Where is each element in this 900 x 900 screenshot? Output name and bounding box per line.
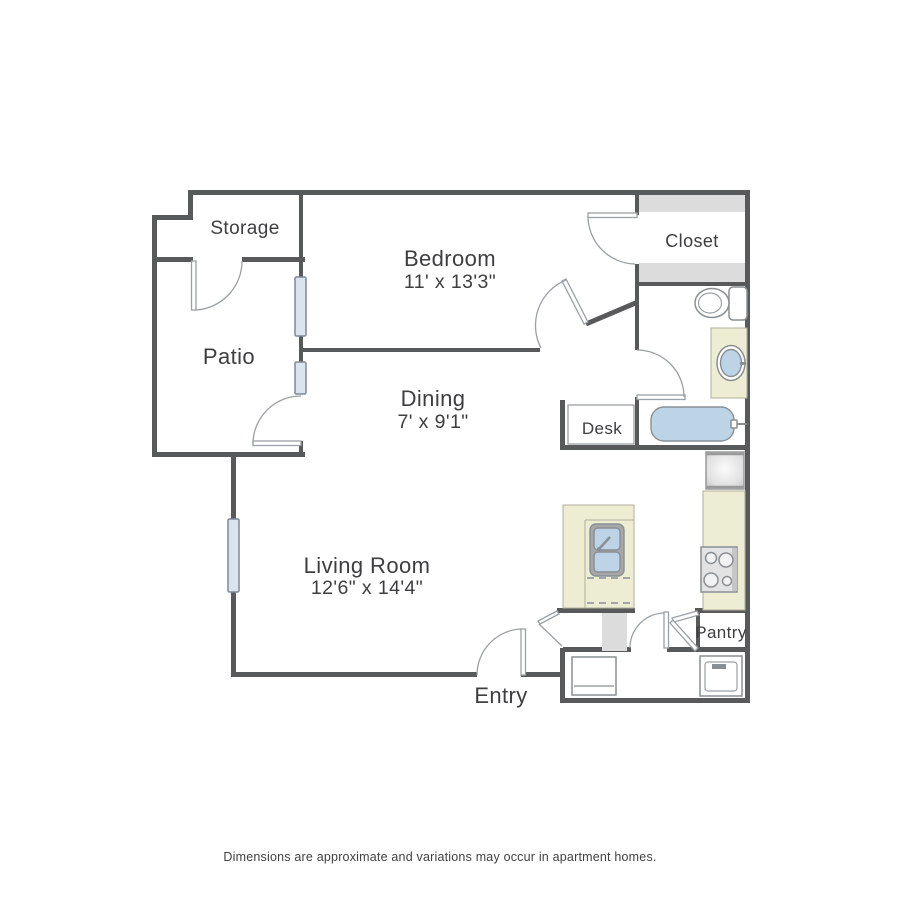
kitchen-sink-icon <box>590 524 624 576</box>
refrigerator-icon <box>706 452 744 489</box>
wall-closet-bottom <box>635 282 750 286</box>
wall-storage-step-h <box>152 215 193 220</box>
wall-hall-bottom-right <box>667 647 750 652</box>
patio-window-lower <box>295 362 306 394</box>
entry-door <box>477 629 526 675</box>
wall-patio-left <box>152 215 157 457</box>
disclaimer-text: Dimensions are approximate and variation… <box>223 850 656 864</box>
storage-door <box>192 261 243 310</box>
bathtub-icon <box>651 407 747 441</box>
patio-door <box>253 396 301 446</box>
windows <box>228 277 306 592</box>
dining-dimensions: 7' x 9'1" <box>397 411 468 433</box>
kitchen-island-counter <box>563 505 634 608</box>
bathroom-vanity <box>711 328 747 398</box>
laundry <box>572 656 742 696</box>
wall-bottom-right <box>560 698 750 703</box>
kitchen-wall-counter <box>701 491 745 610</box>
wall-entry-stub <box>521 672 565 677</box>
bathroom <box>651 287 747 441</box>
wall-storage-bottom-left <box>152 257 193 262</box>
toilet-icon <box>695 287 747 320</box>
storage-label: Storage <box>210 218 279 239</box>
entry-closet-bifold-door <box>538 611 562 646</box>
bedroom-door <box>535 279 588 348</box>
closet-label: Closet <box>665 231 718 251</box>
closet-door <box>588 213 637 264</box>
closet-shelf-top <box>639 195 745 212</box>
wall-bath-left <box>635 264 639 350</box>
laundry-door <box>630 612 669 648</box>
wall-living-bottom <box>231 672 477 677</box>
living-room-label: Living Room <box>304 553 431 578</box>
wall-bath-bottom <box>560 445 750 450</box>
wall-storage-bottom-right <box>242 257 305 262</box>
entry-label: Entry <box>474 683 527 708</box>
bathroom-door <box>637 350 685 400</box>
wall-top <box>188 190 750 195</box>
living-room-dimensions: 12'6" x 14'4" <box>311 577 423 599</box>
wall-bath-left-lower <box>635 397 639 450</box>
wall-bedroom-diagonal <box>586 302 638 324</box>
stove-icon <box>701 547 737 592</box>
wall-closet-left-upper <box>635 195 639 215</box>
dining-label: Dining <box>401 386 466 411</box>
patio-window-upper <box>295 277 306 336</box>
wall-island-bottom <box>557 608 635 613</box>
pantry-label: Pantry <box>695 623 747 642</box>
kitchen <box>563 452 745 610</box>
wall-storage-step-v <box>188 190 193 220</box>
bedroom-dimensions: 11' x 13'3" <box>404 271 496 293</box>
entry-closet-partition <box>602 613 627 651</box>
washer-icon <box>572 657 616 695</box>
floor-plan-drawing: Storage Bedroom 11' x 13'3" Closet Patio… <box>0 0 900 900</box>
wall-bedroom-left-upper <box>299 195 303 278</box>
desk-label: Desk <box>582 419 622 438</box>
wall-patio-bottom <box>152 452 305 457</box>
wall-bedroom-bottom <box>302 348 540 352</box>
closet-shelf-bottom <box>639 263 745 282</box>
wall-desk-left <box>560 400 565 450</box>
dryer-icon <box>700 656 742 696</box>
patio-label: Patio <box>203 344 255 369</box>
bedroom-label: Bedroom <box>404 246 496 271</box>
living-room-window <box>228 519 239 592</box>
floor-plan-page: Storage Bedroom 11' x 13'3" Closet Patio… <box>0 0 900 900</box>
